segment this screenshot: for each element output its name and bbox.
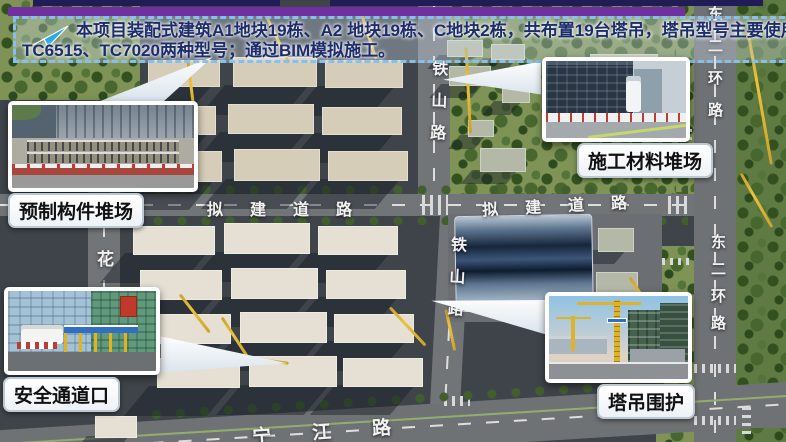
photo-canopy — [64, 325, 138, 333]
callout-label-safety-passage: 安全通道口 — [3, 377, 120, 412]
road-label-tieshan-south: 铁山路 — [440, 235, 469, 332]
photo-ground — [8, 352, 156, 371]
callout-label-precast-yard: 预制构件堆场 — [8, 193, 144, 228]
building-block — [224, 223, 310, 254]
photo-yellow-posts — [64, 333, 138, 354]
building-block — [343, 358, 423, 387]
photo-crane-mast — [571, 316, 575, 351]
building-block — [322, 107, 402, 135]
photo-steel-rack — [27, 140, 180, 151]
road-label-tieshan-north: 铁山路 — [422, 60, 449, 157]
photo-crane-jib — [577, 302, 641, 305]
photo-safety-passage — [4, 287, 160, 375]
photo-city-skyline — [549, 336, 607, 354]
banner-text-line: 本项目装配式建筑A1地块19栋、A2 地块19栋、C地块2栋，共布置19台塔吊，… — [76, 21, 786, 41]
photo-low-building — [630, 349, 686, 362]
project-note-banner: 本项目装配式建筑A1地块19栋、A2 地块19栋、C地块2栋，共布置19台塔吊，… — [13, 16, 786, 63]
building-block — [148, 314, 231, 344]
photo-scaffold-grid — [546, 61, 633, 116]
callout-label-material-yard: 施工材料堆场 — [577, 143, 713, 178]
photo-fence — [546, 113, 686, 122]
road-label-proposed-west: 拟建道路 — [207, 196, 379, 220]
building-block — [468, 120, 494, 137]
building-shadow — [310, 385, 415, 415]
photo-striped-barrier — [17, 342, 57, 349]
tower-crane — [740, 173, 774, 228]
photo-steel-rack — [27, 152, 180, 163]
building-block — [328, 151, 408, 181]
photo-material-yard — [542, 57, 690, 142]
building-shadow — [448, 135, 486, 149]
building-block — [326, 270, 406, 299]
decorative-bar — [330, 0, 763, 6]
building-block — [234, 149, 320, 181]
building-shadow — [482, 101, 522, 115]
photo-hoist — [120, 296, 136, 317]
building-block — [228, 104, 314, 134]
building-block — [95, 416, 137, 438]
photo-tent — [21, 325, 62, 344]
photo-precast-yard — [8, 101, 198, 192]
photo-ground — [549, 362, 688, 379]
building-shadow — [124, 386, 232, 416]
photo-road — [12, 175, 194, 188]
photo-crane-enclosure — [545, 292, 692, 383]
building-block — [240, 312, 327, 343]
photo-silo — [626, 76, 641, 111]
building-block — [133, 226, 215, 255]
slide: 铁山路 铁山路 拟建道路 拟建道路 东二环路 东二环路 花 宁江路 预制构件堆场 — [0, 0, 786, 442]
decorative-bar — [33, 0, 280, 6]
building-block — [325, 60, 403, 88]
road-label-hua: 花 — [97, 245, 114, 270]
building-block — [480, 148, 526, 172]
building-block — [231, 268, 318, 299]
decorative-bar — [8, 7, 685, 16]
building-shadow — [460, 170, 518, 184]
photo-blue-banner — [607, 318, 626, 324]
building-block — [598, 228, 634, 252]
photo-red-walkway — [12, 168, 194, 175]
photo-crane-mast — [614, 300, 620, 361]
road-label-dong-er-huan-south: 东二环路 — [707, 234, 728, 342]
building-block — [318, 226, 398, 255]
banner-text-line: TC6515、TC7020两种型号；通过BIM模拟施工。 — [22, 41, 395, 61]
callout-label-crane-enclosure: 塔吊围护 — [597, 384, 695, 419]
